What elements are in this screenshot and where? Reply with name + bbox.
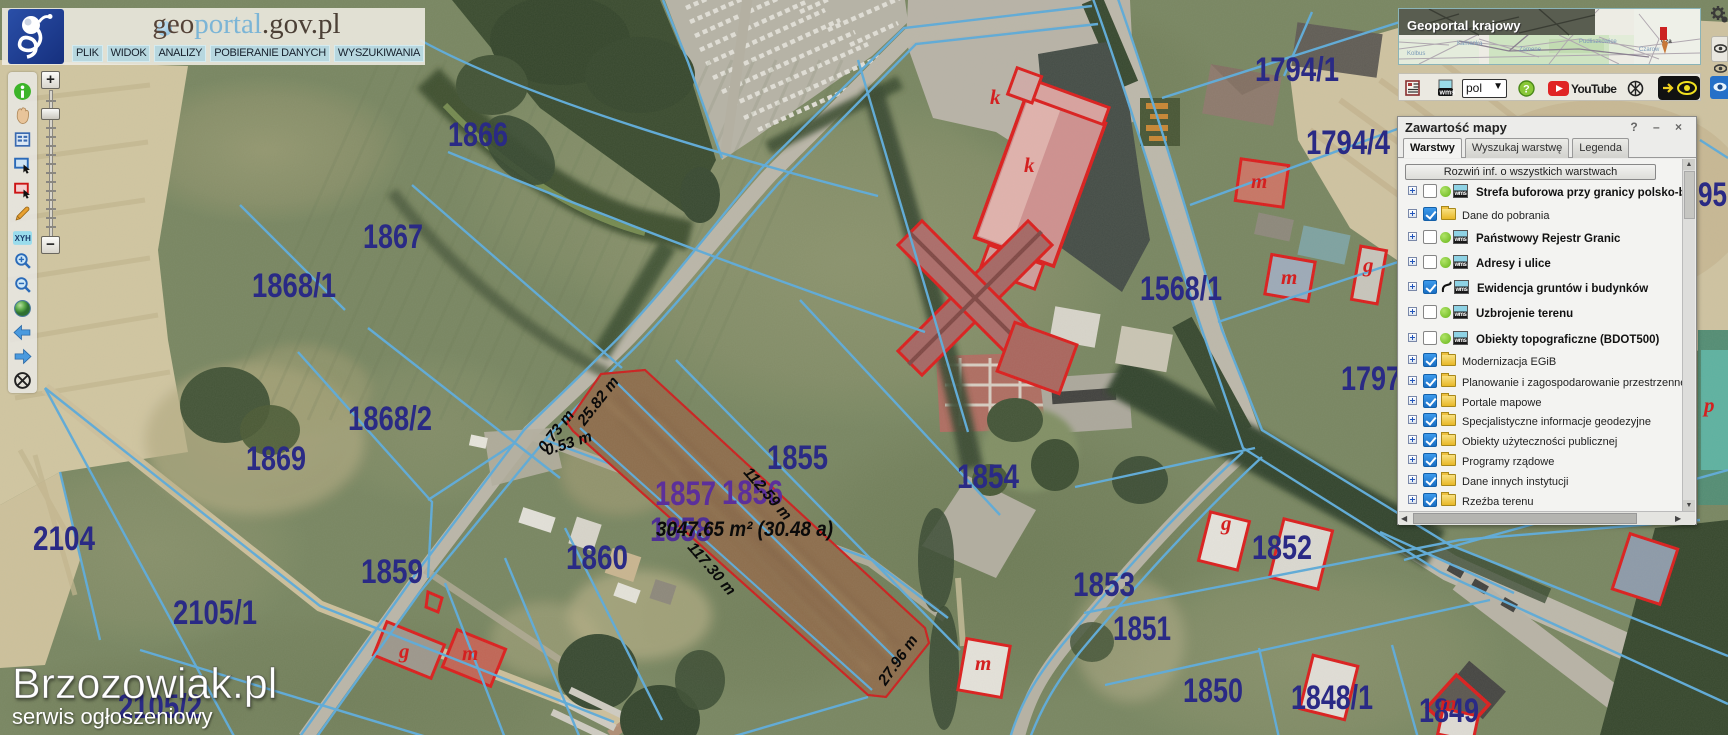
svg-text:YouTube: YouTube: [1571, 82, 1617, 96]
svg-text:m: m: [975, 651, 991, 675]
svg-text:1852: 1852: [1252, 529, 1312, 567]
svg-text:1848/1: 1848/1: [1291, 679, 1373, 717]
svg-text:m: m: [1281, 265, 1297, 289]
svg-text:g: g: [398, 639, 410, 663]
svg-text:1857: 1857: [655, 475, 716, 513]
svg-text:XYH: XYH: [15, 234, 32, 243]
svg-text:?: ?: [1523, 84, 1530, 96]
svg-text:2104: 2104: [33, 520, 95, 558]
svg-text:1868/1: 1868/1: [252, 267, 336, 305]
svg-text:m: m: [1440, 691, 1456, 715]
svg-text:1794/1: 1794/1: [1255, 51, 1339, 89]
svg-text:Kolbus: Kolbus: [1407, 51, 1425, 57]
svg-text:p: p: [1702, 393, 1715, 417]
svg-text:1855: 1855: [767, 439, 828, 477]
svg-text:1860: 1860: [566, 539, 628, 577]
svg-text:1853: 1853: [1073, 566, 1135, 604]
svg-text:Pudliszkowice: Pudliszkowice: [1579, 39, 1617, 45]
svg-text:g: g: [1220, 511, 1232, 535]
svg-text:k: k: [1024, 153, 1035, 177]
svg-text:1869: 1869: [246, 440, 306, 478]
svg-text:wms: wms: [1439, 90, 1456, 97]
svg-text:Zamene: Zamene: [1519, 47, 1542, 53]
svg-text:m: m: [462, 641, 478, 665]
svg-text:1866: 1866: [448, 116, 508, 154]
svg-text:g: g: [1362, 253, 1374, 277]
svg-text:Geoportal krajowy: Geoportal krajowy: [1407, 18, 1521, 33]
svg-text:1854: 1854: [957, 458, 1019, 496]
svg-text:1867: 1867: [363, 218, 423, 256]
svg-text:1859: 1859: [361, 553, 423, 591]
svg-text:k: k: [990, 85, 1001, 109]
svg-text:1797: 1797: [1341, 360, 1401, 398]
svg-text:2105/1: 2105/1: [173, 594, 257, 632]
svg-text:1868/2: 1868/2: [348, 400, 432, 438]
svg-text:Czarow: Czarow: [1639, 47, 1660, 53]
svg-text:Kamanka: Kamanka: [1457, 41, 1483, 47]
svg-text:95: 95: [1698, 176, 1727, 214]
svg-text:1794/4: 1794/4: [1306, 124, 1390, 162]
svg-text:3047.65 m² (30.48 a): 3047.65 m² (30.48 a): [656, 518, 833, 541]
svg-text:m: m: [1251, 169, 1267, 193]
svg-text:1850: 1850: [1183, 672, 1243, 710]
svg-text:1851: 1851: [1113, 610, 1171, 648]
svg-text:1568/1: 1568/1: [1140, 270, 1222, 308]
